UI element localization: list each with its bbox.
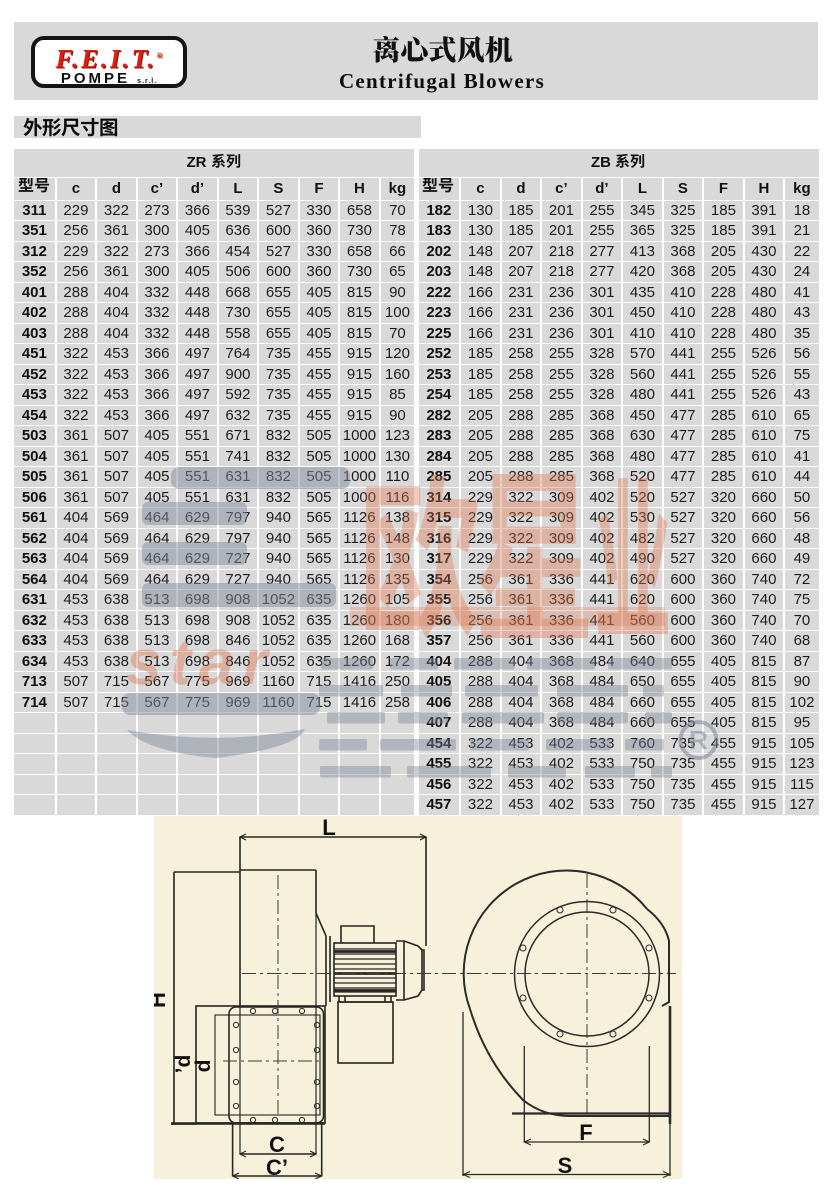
svg-text:S: S: [558, 1153, 573, 1178]
svg-text:H: H: [154, 992, 170, 1008]
svg-text:d: d: [192, 1060, 215, 1073]
svg-text:F: F: [579, 1120, 592, 1145]
svg-text:L: L: [322, 816, 335, 840]
svg-text:C: C: [269, 1132, 285, 1157]
svg-text:C’: C’: [266, 1155, 288, 1179]
